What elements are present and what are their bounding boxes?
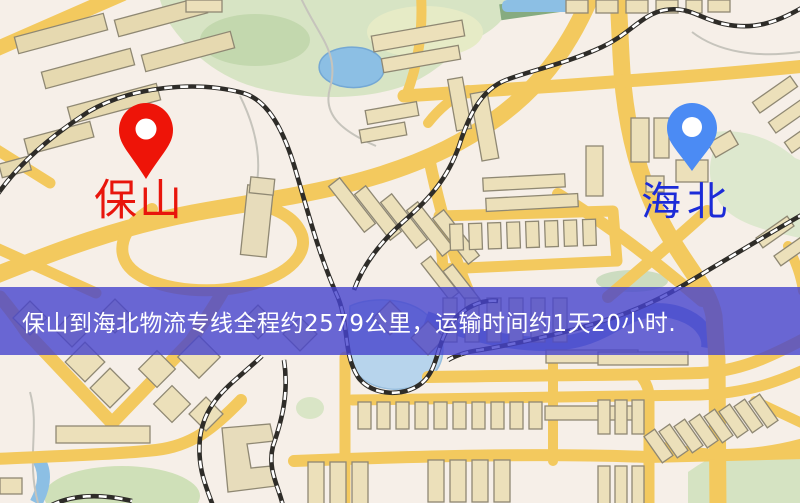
route-info-text: 保山到海北物流专线全程约2579公里，运输时间约1天20小时.: [22, 304, 676, 338]
destination-label: 海北: [641, 182, 733, 222]
route-info-banner: 保山到海北物流专线全程约2579公里，运输时间约1天20小时.: [0, 287, 800, 355]
map-canvas: [0, 0, 800, 503]
origin-label: 保山: [94, 180, 184, 223]
blue-pin-hole: [682, 117, 702, 137]
red-pin-hole: [136, 119, 157, 140]
map-viewport[interactable]: 保山 海北 保山到海北物流专线全程约2579公里，运输时间约1天20小时.: [0, 0, 800, 503]
